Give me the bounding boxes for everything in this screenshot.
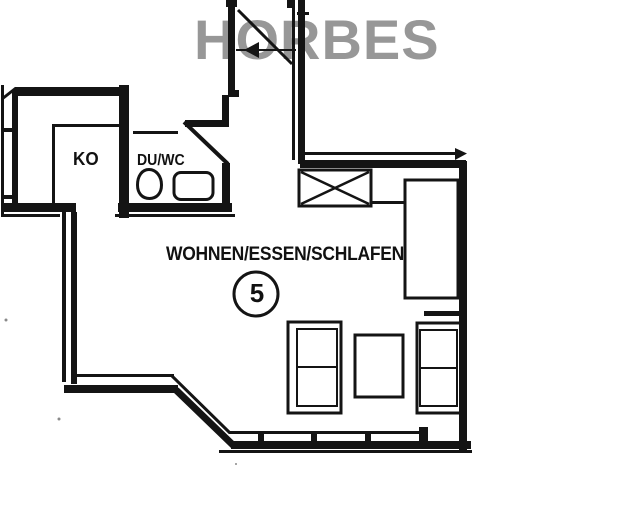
entrance-door-leaf <box>238 10 292 64</box>
kitchen-bath-partition-wall <box>119 85 129 218</box>
top-right-wall <box>300 148 467 168</box>
wardrobe-symbol <box>405 180 458 298</box>
room-label-bathroom: DU/WC <box>137 153 185 169</box>
diagonal-wall <box>176 390 234 446</box>
window-wall-left <box>1 85 18 215</box>
bathroom-door-leaf <box>184 122 228 164</box>
toilet-icon <box>138 170 162 199</box>
window-mullion <box>311 431 317 444</box>
wall-arrow-tip <box>455 148 467 160</box>
floorplan-page: HORBES <box>0 0 640 512</box>
sofa-left <box>288 322 341 413</box>
shaft-side-line <box>371 201 406 204</box>
kitchen-counter-line <box>52 124 122 127</box>
window-mullion <box>258 431 264 444</box>
diagonal-wall <box>172 376 230 433</box>
kitchen-top-wall <box>15 87 128 96</box>
kitchen-bottom-wall <box>3 203 76 212</box>
sofa-right <box>417 323 463 413</box>
hall-right-wall <box>287 0 309 164</box>
living-bottom-left-wall <box>64 374 178 393</box>
bathroom-bottom-wall <box>118 203 232 212</box>
entrance-direction-arrow <box>236 42 296 58</box>
window-mullion <box>365 431 371 444</box>
living-left-wall <box>62 212 77 384</box>
room-label-kitchen: KO <box>73 150 99 168</box>
bathroom-top-partition <box>133 131 178 134</box>
wall-pier <box>419 427 428 447</box>
chimney-shaft-symbol <box>299 170 371 206</box>
room-label-living: WOHNEN/ESSEN/SCHLAFEN <box>166 245 404 264</box>
living-bottom-window-band <box>219 427 472 453</box>
kitchen-walls <box>1 85 129 218</box>
hall-left-wall <box>226 0 239 97</box>
sink-icon <box>174 173 213 200</box>
niche-wall-stub <box>424 311 466 316</box>
kitchen-counter-line <box>52 124 55 205</box>
unit-number-label: 5 <box>244 280 270 306</box>
coffee-table <box>355 335 403 397</box>
